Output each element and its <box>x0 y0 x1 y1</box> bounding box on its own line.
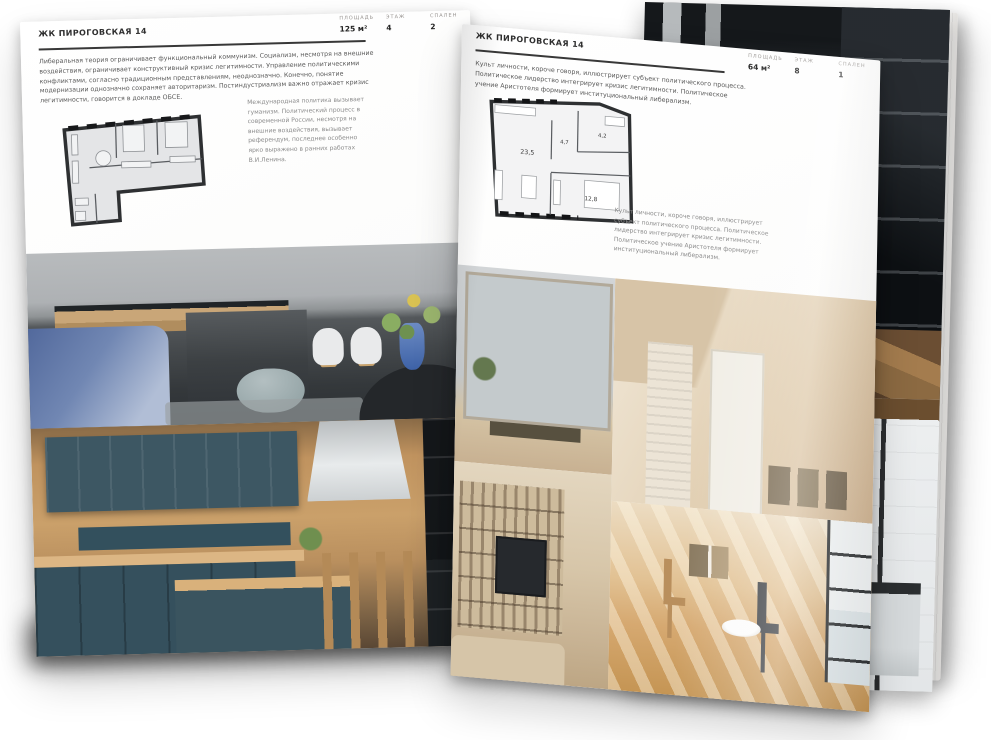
magazine-mockup: ЖК ПИРОГОВСКАЯ 14 ПЛОЩАДЬ 125 м² ЭТАЖ 4 … <box>0 0 991 740</box>
picture-frames <box>768 466 852 511</box>
flowers <box>371 281 449 339</box>
leaning-frames <box>688 543 756 581</box>
metric-value: 2 <box>430 21 462 31</box>
room-area-label: 12,8 <box>584 196 597 203</box>
metric-area: ПЛОЩАДЬ 125 м² <box>339 15 374 34</box>
metric-label: ПЛОЩАДЬ <box>748 53 783 62</box>
left-page-title: ЖК ПИРОГОВСКАЯ 14 <box>38 27 147 39</box>
range-hood <box>305 419 411 501</box>
photo-bookshelf-wall <box>451 461 612 689</box>
left-metrics: ПЛОЩАДЬ 125 м² ЭТАЖ 4 СПАЛЕН 2 <box>339 12 462 33</box>
metric-value: 1 <box>838 70 870 82</box>
photo-kitchen-teal <box>31 417 487 657</box>
room-area-label: 4,2 <box>598 133 607 140</box>
metric-label: ЭТАЖ <box>795 57 827 66</box>
white-bowl <box>721 618 760 638</box>
right-metrics: ПЛОЩАДЬ 64 м² ЭТАЖ 8 СПАЛЕН 1 <box>748 53 871 82</box>
metric-value: 64 м² <box>748 62 783 74</box>
brick-wall <box>645 341 692 507</box>
white-chair <box>312 328 344 366</box>
room-area-label: 4,7 <box>560 139 569 146</box>
bar-stools <box>322 551 428 649</box>
photo-window-wall <box>454 265 615 475</box>
left-caption-text: Международная политика вызывает гуманизм… <box>247 95 371 165</box>
metric-value: 4 <box>386 23 418 33</box>
plant <box>468 344 500 394</box>
metric-floor: ЭТАЖ 4 <box>386 14 418 33</box>
plant <box>290 524 331 557</box>
photo-beige-hallway <box>611 278 876 523</box>
tv-screen <box>495 535 547 597</box>
room-area-label: 23,5 <box>520 149 534 157</box>
right-page-title: ЖК ПИРОГОВСКАЯ 14 <box>476 31 584 49</box>
beige-sofa <box>451 635 565 686</box>
upper-cabinets <box>44 431 298 513</box>
floorplan-left <box>55 109 210 228</box>
metric-value: 8 <box>794 66 826 78</box>
photo-kitchen-island <box>26 242 480 429</box>
metric-label: ЭТАЖ <box>386 14 418 21</box>
wooden-chair <box>653 557 686 639</box>
backsplash <box>78 522 290 550</box>
metric-floor: ЭТАЖ 8 <box>794 57 826 78</box>
left-page: ЖК ПИРОГОВСКАЯ 14 ПЛОЩАДЬ 125 м² ЭТАЖ 4 … <box>20 10 486 657</box>
metric-label: ПЛОЩАДЬ <box>339 15 374 22</box>
metric-label: СПАЛЕН <box>430 12 462 19</box>
photo-sunlit-room <box>608 501 872 712</box>
metric-label: СПАЛЕН <box>838 61 870 70</box>
metric-area: ПЛОЩАДЬ 64 м² <box>748 53 783 74</box>
blue-sofa <box>26 325 170 428</box>
right-caption-text: Культ личности, короче говоря, иллюстрир… <box>614 206 786 269</box>
metric-value: 125 м² <box>339 24 374 34</box>
window-column <box>825 520 873 686</box>
metric-bedrooms: СПАЛЕН 1 <box>838 61 870 82</box>
header-divider <box>39 40 366 50</box>
right-page: ЖК ПИРОГОВСКАЯ 14 ПЛОЩАДЬ 64 м² ЭТАЖ 8 С… <box>451 24 881 712</box>
door <box>708 349 764 518</box>
metric-bedrooms: СПАЛЕН 2 <box>430 12 462 31</box>
